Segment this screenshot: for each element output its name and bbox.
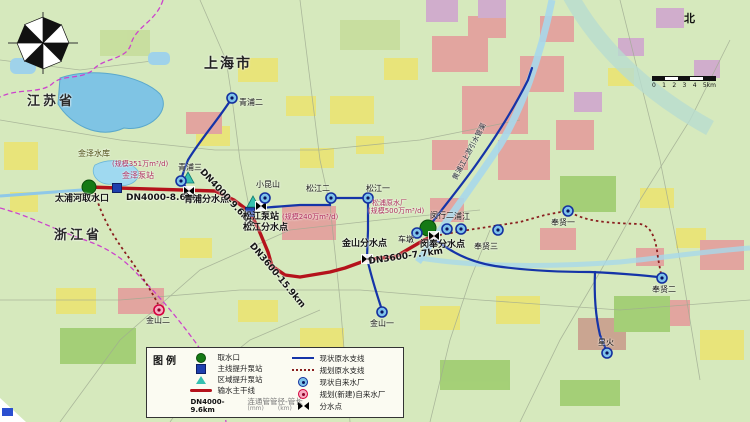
scale-tick: 3	[683, 82, 687, 89]
connector-sample-text: DN4000-9.6km	[190, 398, 242, 414]
scale-bar: 0 1 2 3 4 5km	[652, 76, 716, 89]
taipu-intake-marker	[82, 180, 96, 194]
legend-item-main-line: 输水主干线	[190, 385, 292, 396]
planned-waterworks-icon	[292, 389, 314, 399]
corner-inset	[2, 408, 13, 416]
plant-label-qingpu2: 青浦二	[239, 99, 263, 107]
legend-left-column: 取水口 主线提升泵站 区域提升泵站 输水主干线 DN4000-9.6km 连通管…	[190, 352, 292, 415]
legend-label: 现状原水支线	[319, 353, 364, 364]
unit-km: (km)	[278, 406, 292, 412]
legend-label: 规划(新建)自来水厂	[319, 389, 385, 400]
legend-right-column: 现状原水支线 规划原水支线 现状自来水厂 规划(新建)自来水厂 分水点	[292, 352, 399, 415]
plant-label-minhang2: 闵行二	[430, 212, 454, 220]
scale-tick: 1	[662, 82, 666, 89]
plant-label-xinghuo: 星火	[598, 339, 614, 347]
scale-tick: 4	[693, 82, 697, 89]
legend-item-planned-branch: 规划原水支线	[292, 364, 399, 376]
legend-item-main-pump: 主线提升泵站	[190, 363, 292, 374]
plant-label-jinshan1: 金山一	[370, 320, 394, 328]
unit-mm: (mm)	[247, 406, 263, 412]
region-label-jiangsu: 江苏省	[27, 95, 75, 108]
existing-branch-icon	[292, 357, 314, 359]
planned-branch-icon	[292, 369, 314, 371]
legend-label: 取水口	[217, 352, 240, 363]
existing-waterworks-icon	[292, 377, 314, 387]
label-jinze-scale: (规模351万m³/d)	[112, 161, 168, 168]
junction-icon	[292, 402, 314, 410]
label-taipu-intake: 太浦河取水口	[55, 195, 109, 204]
legend-item-regional-pump: 区域提升泵站	[190, 374, 292, 385]
main-pump-icon	[190, 364, 212, 374]
plant-label-chedun: 车墩	[398, 236, 414, 244]
label-songpu-plant: 松浦原水厂	[372, 200, 407, 207]
label-jinze-reservoir: 金泽水库	[78, 150, 110, 158]
legend-item-existing-waterworks: 现状自来水厂	[292, 376, 399, 388]
north-label: 北	[684, 10, 695, 26]
legend-item-planned-waterworks: 规划(新建)自来水厂	[292, 388, 399, 400]
legend-item-connector: DN4000-9.6km 连通管管径-管长 (mm) (km)	[190, 396, 292, 415]
legend-box: 图例 取水口 主线提升泵站 区域提升泵站 输水主干线 DN4000-9.6km	[146, 347, 404, 418]
compass-rose	[0, 0, 86, 86]
plant-label-songjiang2: 松江二	[306, 185, 330, 193]
plant-label-songjiang1: 松江一	[366, 185, 390, 193]
jinze-pump-marker	[113, 184, 122, 193]
legend-item-intake: 取水口	[190, 352, 292, 363]
scale-tick: 0	[652, 82, 656, 89]
label-jinze-station: 金泽泵站	[122, 172, 154, 180]
plant-label-pujiang: 浦江	[454, 213, 470, 221]
plant-label-fengxian2: 奉贤二	[652, 286, 676, 294]
scale-bar-ticks: 0 1 2 3 4 5km	[652, 82, 716, 89]
region-label-shanghai: 上海市	[204, 57, 252, 71]
label-jinshan-junction: 金山分水点	[342, 240, 387, 249]
legend-label: 区域提升泵站	[217, 374, 262, 385]
water-supply-planning-map: 江苏省 浙江省 上海市 青浦二 青浦三 金泽水库 (规模351万m³/d) 金泽…	[0, 0, 750, 422]
plant-label-fengxian3: 奉贤三	[474, 243, 498, 251]
label-xiaokunshan: 小昆山	[256, 181, 280, 189]
label-songjiang-station: 松江泵站	[243, 213, 279, 222]
label-songjiang-junction: 松江分水点	[243, 224, 288, 233]
legend-item-existing-branch: 现状原水支线	[292, 352, 399, 364]
plant-label-qingpu3: 青浦三	[178, 164, 202, 172]
legend-label: 规划原水支线	[319, 365, 364, 376]
legend-label: 现状自来水厂	[319, 377, 364, 388]
scale-bar-segments	[652, 76, 716, 81]
small-lake	[148, 52, 170, 65]
label-songjiang-scale: (规模240万m³/d)	[282, 214, 338, 221]
scale-tick: 5km	[703, 82, 716, 89]
intake-icon	[190, 353, 212, 363]
legend-title: 图例	[153, 352, 190, 415]
plant-label-fengxian1: 奉贤一	[551, 219, 575, 227]
region-label-zhejiang: 浙江省	[54, 229, 102, 242]
plant-label-jinshan2: 金山二	[146, 317, 170, 325]
legend-label: 分水点	[319, 401, 342, 412]
legend-item-junction: 分水点	[292, 400, 399, 412]
main-line-icon	[190, 389, 212, 392]
legend-label: 输水主干线	[217, 385, 255, 396]
label-songpu-scale: (规模500万m³/d)	[368, 208, 424, 215]
regional-pump-icon	[190, 376, 212, 384]
planned-waterworks-marker	[154, 305, 164, 315]
legend-label: 主线提升泵站	[217, 363, 262, 374]
scale-tick: 2	[672, 82, 676, 89]
